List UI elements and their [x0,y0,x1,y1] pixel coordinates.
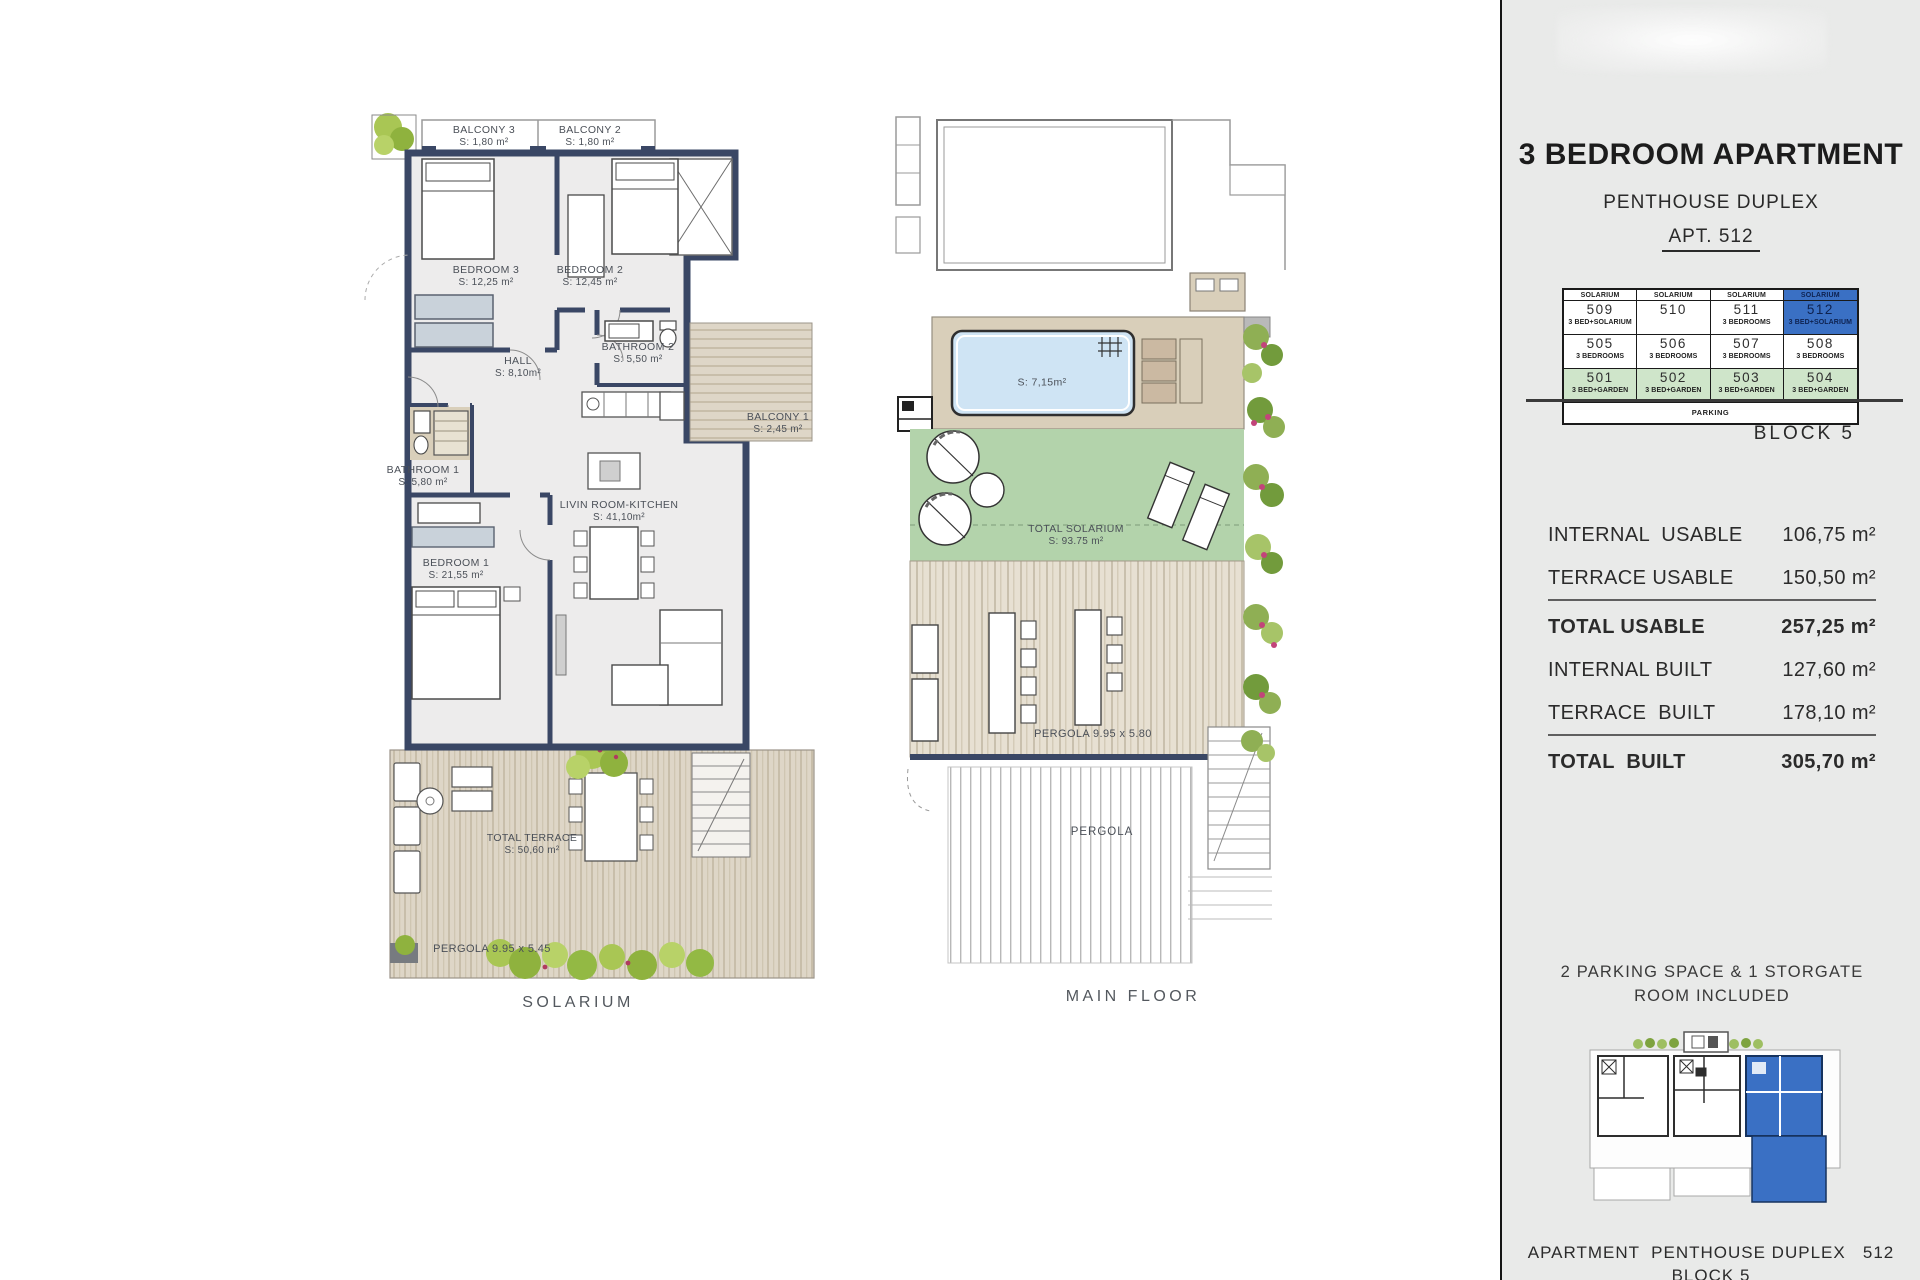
developer-logo [1557,8,1827,72]
round-lounger-icon [919,493,971,545]
lower-pergola [907,727,1272,963]
bed3-icon [422,159,494,259]
area-row-total: TOTAL BUILT305,70 m² [1548,751,1876,777]
unit-cell: 5113 BEDROOMS [1711,301,1784,335]
key-plan-unit-a [1598,1056,1668,1136]
table-col-header: SOLARIUM [1711,290,1784,301]
info-panel: 3 BEDROOM APARTMENT PENTHOUSE DUPLEX APT… [1500,0,1920,1280]
wardrobe-icon [415,295,493,319]
unit-cell: 5063 BEDROOMS [1637,335,1710,369]
unit-cell: 5093 BED+SOLARIUM [1564,301,1637,335]
room-label-bathroom2: BATHROOM 2S: 5,50 m² [602,341,675,367]
brochure-page: BALCONY 3S: 1,80 m² BALCONY 2S: 1,80 m² … [0,0,1920,1280]
unit-cell: 5053 BEDROOMS [1564,335,1637,369]
room-label-terrace: TOTAL TERRACES: 50,60 m² [487,832,578,858]
unit-cell: 5023 BED+GARDEN [1637,369,1710,403]
unit-cell: 5033 BED+GARDEN [1711,369,1784,403]
block-availability-table: SOLARIUM SOLARIUM SOLARIUM SOLARIUM 5093… [1562,288,1859,425]
table-col-header-highlight: SOLARIUM [1784,290,1857,301]
key-plan-unit-512-highlight [1746,1056,1826,1202]
unit-cell: 5013 BED+GARDEN [1564,369,1637,403]
area-summary: INTERNAL USABLE106,75 m² TERRACE USABLE1… [1548,524,1876,794]
table-col-header: SOLARIUM [1564,290,1637,301]
room-label-living: LIVIN ROOM-KITCHENS: 41,10m² [560,499,679,525]
area-row-total: TOTAL USABLE257,25 m² [1548,616,1876,642]
upper-structure [896,117,1285,311]
terrace-stairs-icon [692,753,750,857]
unit-cell: 510 [1637,301,1710,335]
parking-note: 2 PARKING SPACE & 1 STORGATE ROOM INCLUD… [1542,960,1882,1008]
unit-cell: 5073 BEDROOMS [1711,335,1784,369]
page-subtitle: PENTHOUSE DUPLEX [1502,192,1920,214]
terrace-dining-table-icon [569,773,653,861]
pool-deck [932,317,1270,429]
table-col-header: SOLARIUM [1637,290,1710,301]
bathroom1-fixtures [410,407,470,460]
main-floorplan [890,105,1320,1015]
pool-area-label: S: 7,15m² [1017,376,1066,389]
unit-cell: 5083 BEDROOMS [1784,335,1857,369]
kitchen-island [588,453,640,489]
key-plan-roof-access [1684,1032,1728,1052]
table-footer-parking: PARKING [1564,403,1857,423]
shaft-hatch [670,159,732,255]
kitchen-counter [582,392,684,420]
area-row: INTERNAL USABLE106,75 m² [1548,524,1876,550]
unit-cell-highlighted-512: 5123 BED+SOLARIUM [1784,301,1857,335]
flower-hedge [1241,324,1285,762]
unit-cell: 5043 BED+GARDEN [1784,369,1857,403]
floor-label-main: MAIN FLOOR [1066,988,1201,1006]
bed2-icon [612,159,678,254]
pergola-dim-label: PERGOLA 9.95 x 5.80 [1034,728,1152,742]
page-footer: APARTMENT PENTHOUSE DUPLEX 512 BLOCK 5 [1502,1243,1920,1280]
room-label-balcony3: BALCONY 3S: 1,80 m² [453,124,515,150]
total-solarium-label: TOTAL SOLARIUMS: 93.75 m² [1028,523,1124,549]
room-label-balcony1: BALCONY 1S: 2,45 m² [747,411,809,437]
page-title: 3 BEDROOM APARTMENT [1502,138,1920,172]
pool-pump [898,397,932,431]
room-label-bedroom1: BEDROOM 1S: 21,55 m² [423,557,490,583]
room-label-bedroom2: BEDROOM 2S: 12,45 m² [557,264,624,290]
room-label-bedroom3: BEDROOM 3S: 12,25 m² [453,264,520,290]
wardrobe-icon [415,323,493,347]
area-row: INTERNAL BUILT127,60 m² [1548,659,1876,685]
pergola-label: PERGOLA [1071,825,1134,839]
area-row: TERRACE USABLE150,50 m² [1548,567,1876,601]
area-row: TERRACE BUILT178,10 m² [1548,702,1876,736]
ground-line [1526,399,1903,402]
apartment-reference: APT. 512 [1502,226,1920,252]
dining-table-icon [574,527,654,599]
room-label-balcony2: BALCONY 2S: 1,80 m² [559,124,621,150]
room-label-bathroom1: BATHROOM 1S: 5,80 m² [387,464,460,490]
pool-icon [952,331,1134,415]
round-lounger-icon [927,431,979,483]
floor-label-solarium: SOLARIUM [522,994,634,1012]
key-plan-unit-b [1674,1056,1740,1136]
side-table-icon [970,473,1004,507]
block-key-plan [1584,1028,1846,1213]
room-label-hall: HALLS: 8,10m² [495,355,541,381]
pergola-dim-label: PERGOLA 9.95 x 5.45 [433,943,551,957]
block-label: BLOCK 5 [1754,423,1855,445]
